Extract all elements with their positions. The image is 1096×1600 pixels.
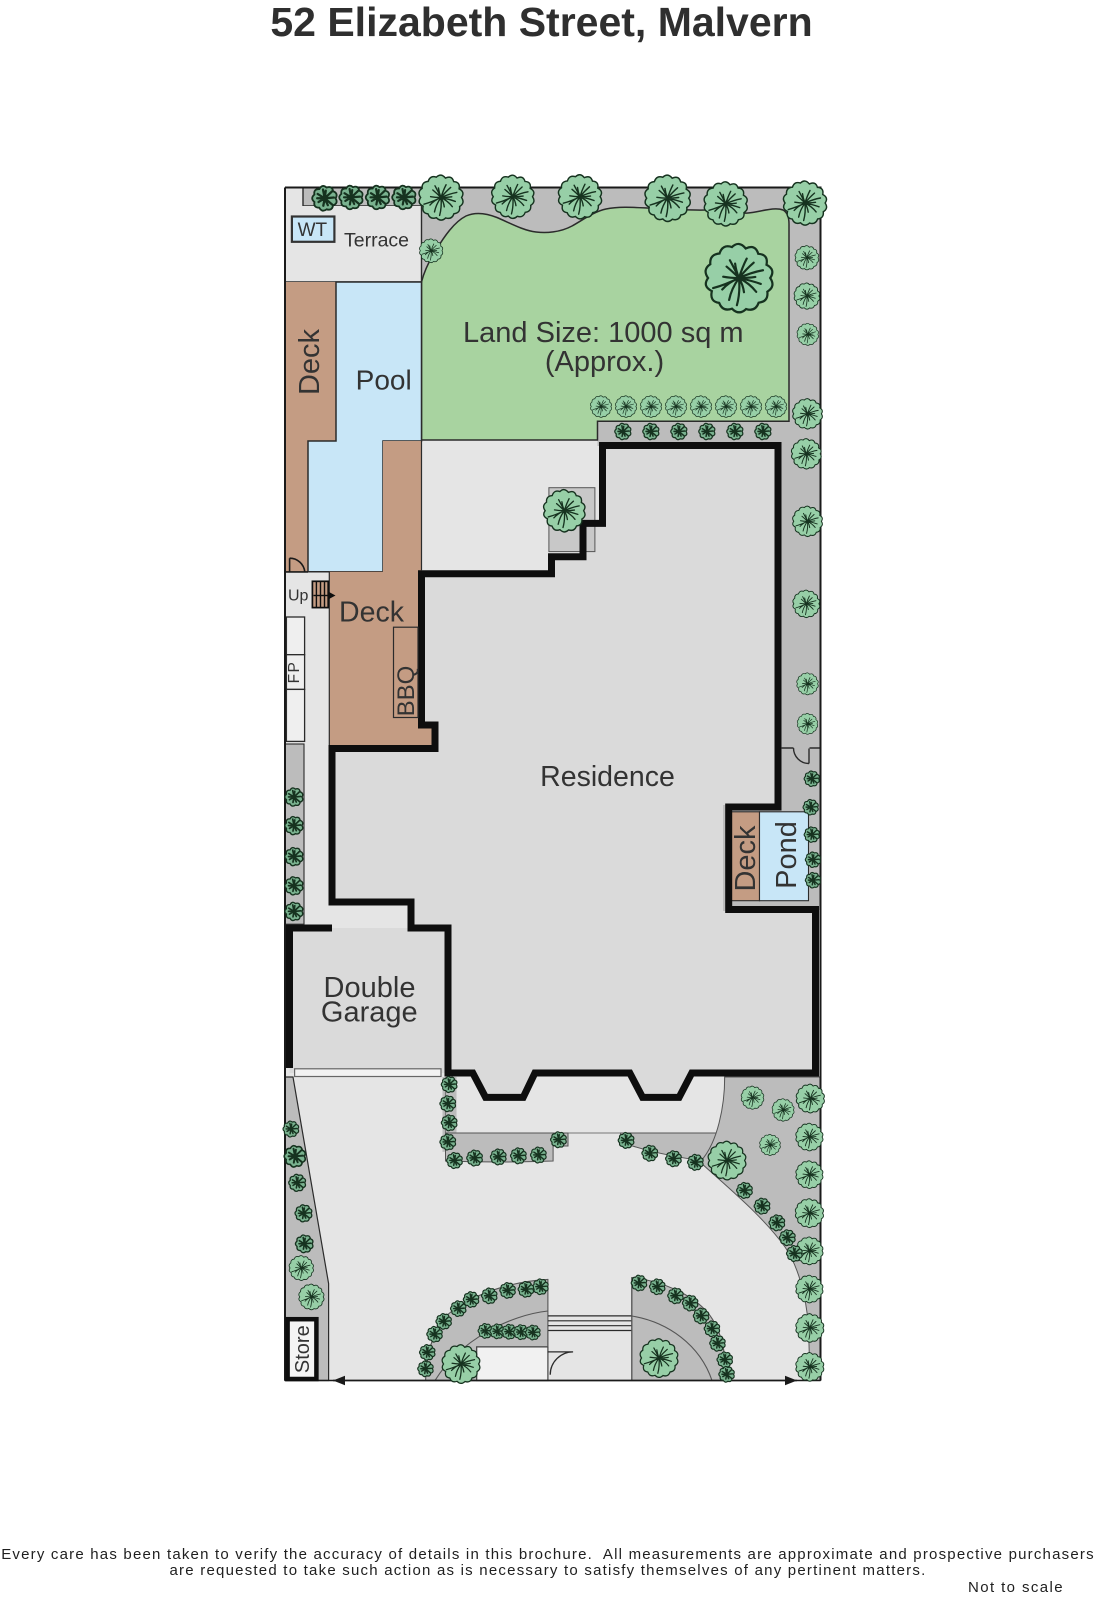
- svg-text:WT: WT: [298, 220, 328, 241]
- svg-text:Deck: Deck: [730, 825, 762, 892]
- svg-text:Pond: Pond: [771, 821, 803, 889]
- svg-text:Land Size: 1000 sq m: Land Size: 1000 sq m: [463, 317, 744, 349]
- svg-text:Deck: Deck: [339, 597, 405, 629]
- svg-text:Pool: Pool: [356, 365, 412, 396]
- svg-text:Store: Store: [292, 1325, 314, 1373]
- svg-text:FP: FP: [286, 661, 303, 684]
- svg-text:Terrace: Terrace: [344, 230, 409, 252]
- svg-text:Up: Up: [288, 588, 309, 605]
- svg-text:Residence: Residence: [540, 761, 675, 793]
- svg-text:BBQ: BBQ: [393, 666, 420, 717]
- svg-text:Garage: Garage: [321, 997, 418, 1029]
- svg-text:Deck: Deck: [294, 328, 326, 395]
- svg-text:(Approx.): (Approx.): [545, 346, 664, 378]
